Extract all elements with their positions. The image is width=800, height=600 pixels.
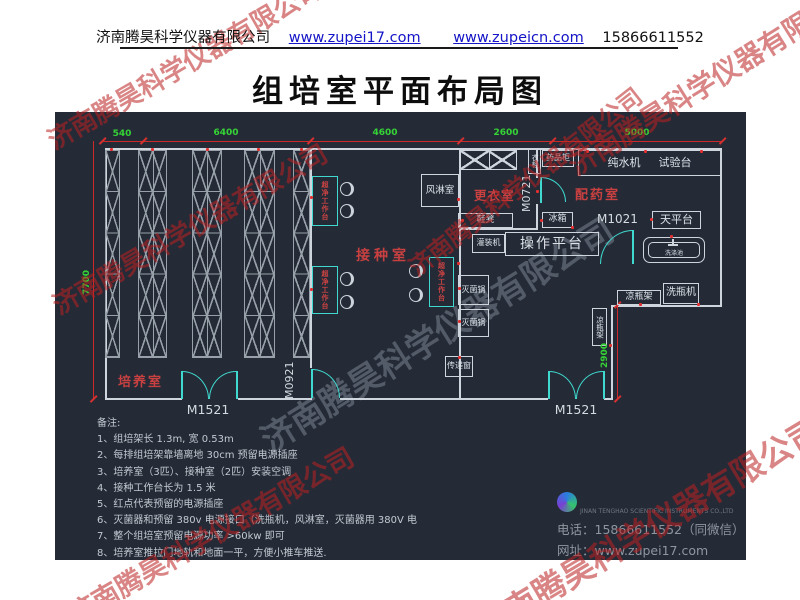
- sink-faucet-bar-icon: [668, 244, 678, 246]
- notes-title: 备注:: [97, 416, 417, 432]
- socket-dot: [536, 190, 539, 193]
- culture-rack-5: [293, 150, 310, 358]
- culture-rack-1: [105, 150, 120, 358]
- clean-bench-3: 超净工作台: [429, 257, 454, 307]
- door-label-m1521b: M1521: [549, 402, 603, 417]
- fridge: 冰箱: [542, 212, 573, 228]
- room-label-culture: 培养室: [118, 371, 163, 390]
- operating-platform: 操作平台: [505, 232, 599, 256]
- note-line: 5、红点代表预留的电源插座: [97, 497, 417, 513]
- door-label-m0921: M0921: [283, 362, 296, 400]
- stool: [340, 182, 354, 196]
- room-label-dispensing: 配药室: [575, 184, 620, 203]
- footer-phone-label: 电话：: [557, 522, 595, 537]
- socket-dot: [310, 288, 313, 291]
- page-title: 组培室平面布局图: [0, 66, 800, 111]
- sink: 洗涤池: [643, 237, 705, 263]
- door-leaf: [548, 371, 550, 399]
- stool: [340, 204, 354, 218]
- socket-dot: [609, 344, 612, 347]
- pass-through-window: 传递窗: [445, 356, 473, 377]
- header-divider: [120, 47, 678, 49]
- wall-bottom-2: [238, 398, 312, 400]
- socket-dot: [458, 320, 461, 323]
- socket-dot: [151, 148, 154, 151]
- header: 济南腾昊科学仪器有限公司 www.zupei17.com www.zupeicn…: [0, 26, 800, 47]
- top-bench: 纯水机 试验台: [578, 150, 721, 176]
- dim-line-right: [617, 305, 618, 400]
- dim-label-540: 540: [102, 129, 142, 139]
- door-leaf: [603, 371, 605, 399]
- stool: [340, 295, 354, 309]
- note-line: 7、整个组培室预留电源功率 >60kw 即可: [97, 529, 417, 545]
- website-link-2[interactable]: www.zupeicn.com: [453, 30, 584, 46]
- footer-web: www.zupei17.com: [595, 543, 709, 558]
- pure-water-machine: 纯水机: [608, 157, 641, 169]
- note-line: 2、每排组培架靠墙离地 30cm 预留电源插座: [97, 448, 417, 464]
- socket-dot: [461, 219, 464, 222]
- socket-dot: [206, 148, 209, 151]
- air-shower-room: 风淋室: [421, 174, 459, 207]
- socket-dot: [257, 148, 260, 151]
- culture-rack-2: [138, 150, 167, 358]
- stool: [340, 272, 354, 286]
- door-leaf: [181, 371, 183, 399]
- socket-dot: [458, 287, 461, 290]
- socket-dot: [457, 198, 460, 201]
- culture-rack-3: [192, 150, 222, 358]
- socket-dot: [639, 303, 642, 306]
- door-label-m1521a: M1521: [182, 402, 234, 417]
- wall-step-horizontal: [611, 305, 722, 307]
- door-leaf: [311, 369, 313, 398]
- wall-changing-south: [459, 228, 538, 230]
- culture-rack-4: [244, 150, 275, 358]
- socket-dot: [670, 235, 673, 238]
- door-label-m1021: M1021: [597, 212, 638, 226]
- socket-dot: [540, 219, 543, 222]
- footer-web-label: 网址：: [557, 543, 595, 558]
- sterilizer-2: 灭菌锅: [458, 309, 489, 337]
- page: 济南腾昊科学仪器有限公司 www.zupei17.com www.zupeicn…: [0, 0, 800, 600]
- bottle-washer: 洗瓶机: [663, 283, 699, 304]
- dim-label-2600: 2600: [486, 128, 526, 138]
- door-leaf: [236, 371, 238, 399]
- socket-dot: [700, 150, 703, 153]
- shoe-bench: 鞋凳: [458, 213, 513, 228]
- note-line: 3、培养室（3匹）、接种室（2匹）安装空调: [97, 465, 417, 481]
- wall-bottom-1: [105, 398, 182, 400]
- website-link-1[interactable]: www.zupei17.com: [289, 30, 421, 46]
- wall-changing-dispensing-lower: [536, 204, 538, 230]
- socket-dot: [650, 218, 653, 221]
- dim-label-5000: 5000: [617, 128, 657, 138]
- sterilizer-1: 灭菌锅: [458, 275, 489, 305]
- note-line: 4、接种工作台长为 1.5 米: [97, 481, 417, 497]
- socket-dot: [457, 262, 460, 265]
- note-line: 1、组培架长 1.3m, 宽 0.53m: [97, 432, 417, 448]
- socket-dot: [300, 148, 303, 151]
- socket-dot: [586, 150, 589, 153]
- medicine-cabinet: 药品柜: [542, 150, 574, 167]
- dim-line-top: [102, 141, 722, 142]
- logo-icon: [557, 492, 577, 512]
- footer-phone: 15866611552（同微信）: [595, 522, 745, 537]
- stool: [409, 288, 423, 302]
- door-label-m0721: M0721: [520, 175, 533, 213]
- wall-bottom-3: [340, 398, 548, 400]
- balance-table: 天平台: [652, 211, 701, 229]
- wall-step-vertical: [611, 305, 613, 400]
- door-leaf: [540, 177, 542, 203]
- phone-number: 15866611552: [602, 30, 703, 46]
- socket-dot: [697, 303, 700, 306]
- socket-dot: [571, 226, 574, 229]
- notes-block: 备注: 1、组培架长 1.3m, 宽 0.53m 2、每排组培架靠墙离地 30c…: [97, 416, 417, 562]
- test-bench: 试验台: [659, 157, 692, 169]
- room-label-inoculation: 接种室: [356, 245, 410, 265]
- dim-line-left: [93, 141, 94, 400]
- clean-bench-2: 超净工作台: [312, 266, 338, 314]
- dim-label-4600: 4600: [365, 128, 405, 138]
- dim-label-6400: 6400: [206, 128, 246, 138]
- company-name: 济南腾昊科学仪器有限公司: [96, 30, 270, 46]
- bottle-cooling-rack-v: 凉瓶架: [592, 308, 607, 346]
- note-line: 8、培养室推拉门地轨和地面一平，方便小推车推送.: [97, 546, 417, 562]
- stool: [409, 264, 423, 278]
- footer-brand-en: JINAN TENGHAO SCIENTIFIC INSTRUMENTS CO.…: [580, 508, 733, 515]
- filling-machine: 灌装机: [472, 234, 505, 253]
- socket-dot: [110, 148, 113, 151]
- dim-label-7700: 7700: [82, 270, 92, 295]
- room-label-changing: 更衣室: [474, 185, 515, 204]
- door-leaf: [632, 230, 634, 264]
- socket-dot: [310, 196, 313, 199]
- clean-bench-1: 超净工作台: [312, 176, 338, 226]
- socket-dot: [644, 150, 647, 153]
- socket-dot: [458, 356, 461, 359]
- wardrobe-cabinet: 衣柜: [528, 148, 541, 174]
- locker-cabinet: [460, 150, 517, 170]
- note-line: 6、灭菌器和预留 380v 电源接口（洗瓶机，风淋室，灭菌器用 380V 电: [97, 513, 417, 529]
